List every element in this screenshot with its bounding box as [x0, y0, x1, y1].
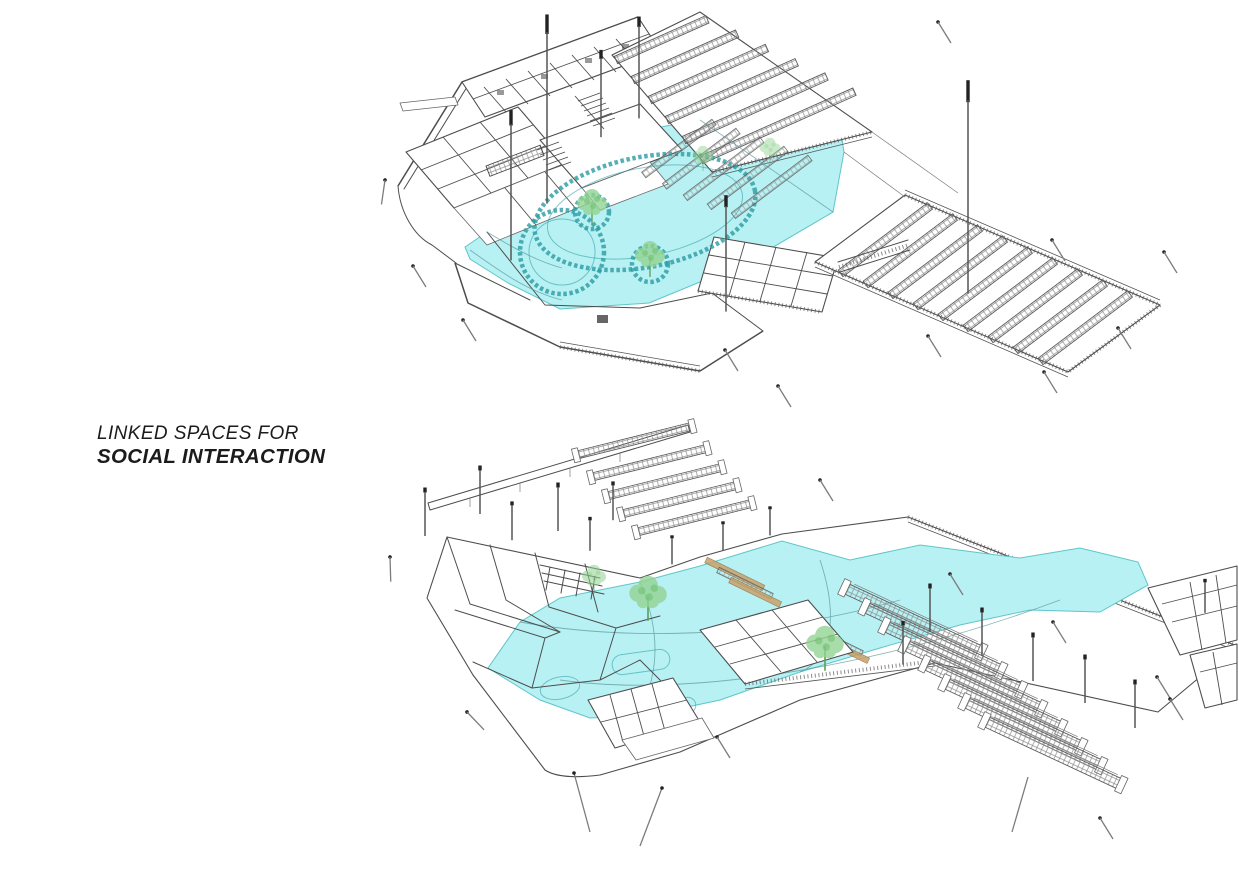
upper-axonometric-drawing — [370, 12, 1177, 407]
lower-axonometric-drawing — [378, 419, 1237, 846]
upper-pier-deck — [815, 80, 1160, 377]
axonometric-diagrams — [0, 0, 1239, 870]
lower-truss-bars — [571, 419, 757, 540]
upper-right-room-block — [698, 237, 838, 312]
presentation-board: LINKED SPACES FOR SOCIAL INTERACTION — [0, 0, 1239, 870]
